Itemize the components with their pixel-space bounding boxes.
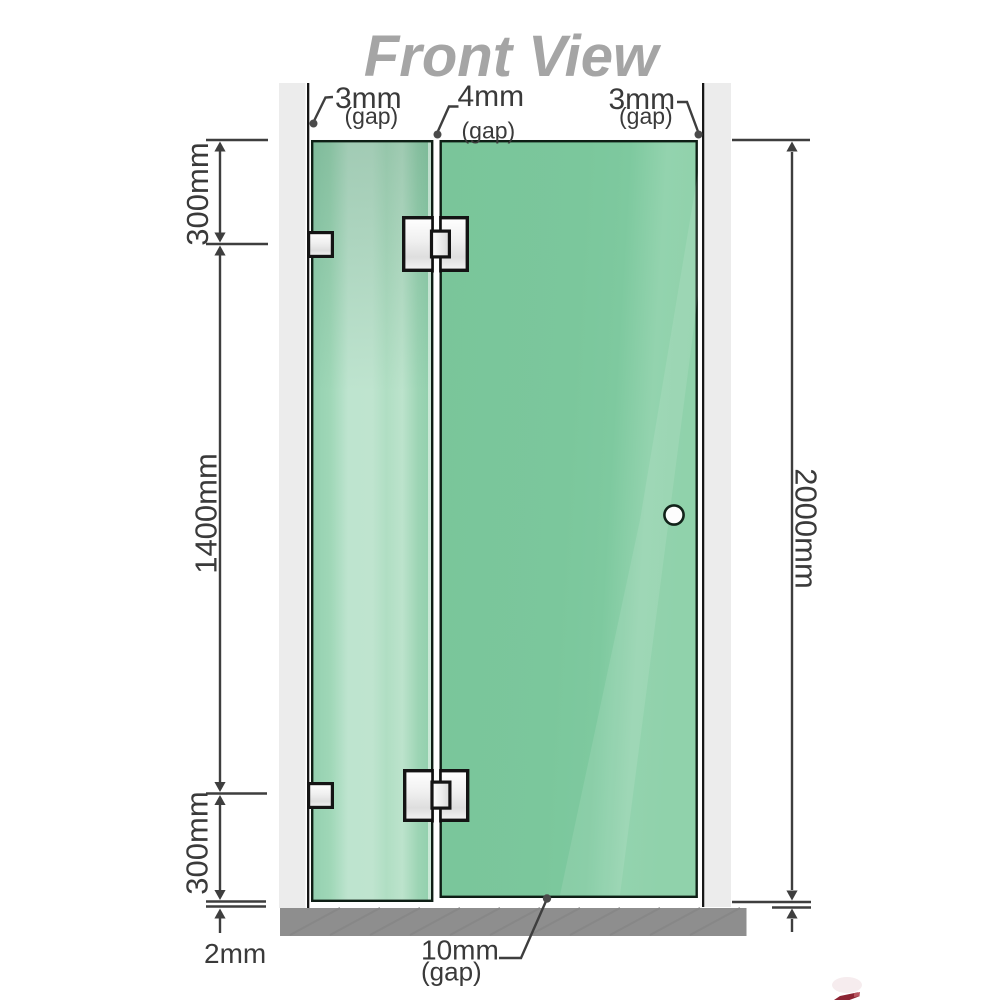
svg-text:300mm: 300mm — [180, 791, 215, 894]
svg-text:4mm: 4mm — [458, 80, 525, 113]
svg-text:(gap): (gap) — [345, 103, 399, 129]
svg-text:300mm: 300mm — [180, 142, 215, 245]
svg-text:(gap): (gap) — [421, 957, 482, 987]
svg-text:(gap): (gap) — [462, 118, 516, 144]
svg-text:2000mm: 2000mm — [789, 468, 824, 589]
svg-text:(gap): (gap) — [619, 103, 673, 129]
svg-text:2mm: 2mm — [204, 938, 266, 969]
svg-text:1400mm: 1400mm — [189, 453, 224, 574]
